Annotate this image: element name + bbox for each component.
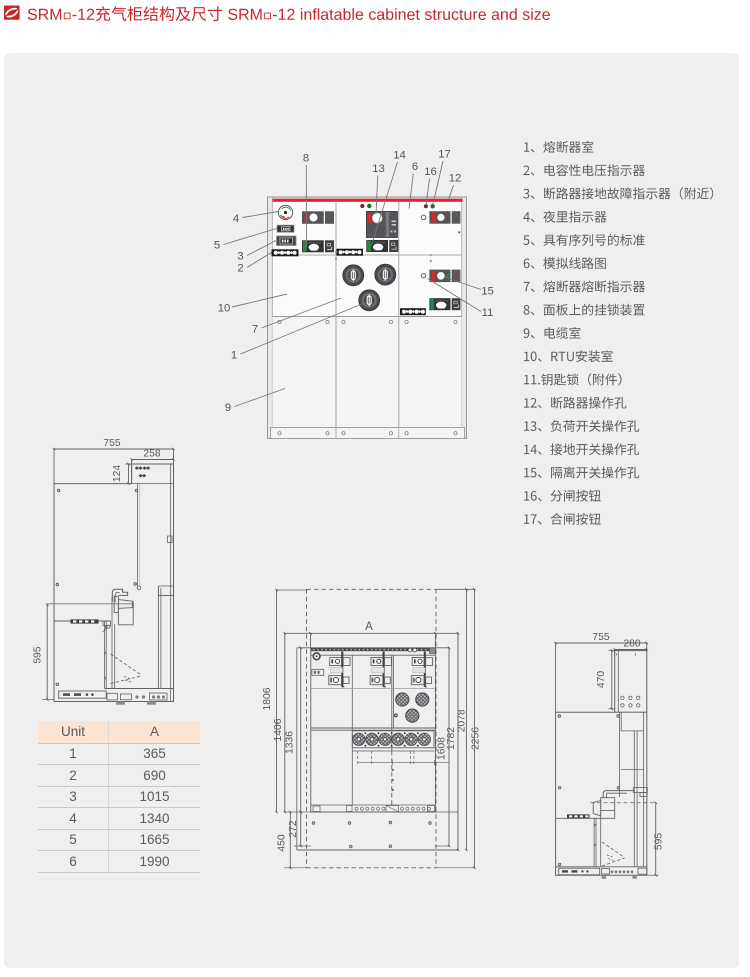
svg-text:13: 13 xyxy=(372,163,385,175)
svg-text:755: 755 xyxy=(103,438,120,449)
svg-text:450: 450 xyxy=(277,834,288,851)
svg-text:280: 280 xyxy=(623,639,640,650)
svg-text:4: 4 xyxy=(233,213,239,225)
svg-text:12: 12 xyxy=(449,173,462,185)
svg-text:10: 10 xyxy=(218,303,231,315)
svg-text:8: 8 xyxy=(303,153,309,165)
svg-text:6: 6 xyxy=(412,161,418,173)
svg-text:2256: 2256 xyxy=(471,727,482,750)
svg-text:A: A xyxy=(365,621,373,633)
svg-text:14: 14 xyxy=(393,150,406,162)
svg-text:2: 2 xyxy=(237,263,243,275)
svg-text:1: 1 xyxy=(231,350,237,362)
svg-text:1336: 1336 xyxy=(285,731,296,754)
svg-text:2078: 2078 xyxy=(457,709,468,732)
svg-text:595: 595 xyxy=(654,833,665,850)
svg-text:1806: 1806 xyxy=(262,687,273,710)
svg-text:272: 272 xyxy=(288,820,299,837)
svg-text:15: 15 xyxy=(481,286,494,298)
svg-text:1782: 1782 xyxy=(446,727,457,750)
svg-text:124: 124 xyxy=(112,465,123,482)
svg-text:1406: 1406 xyxy=(273,718,284,741)
svg-text:755: 755 xyxy=(592,632,609,643)
svg-text:3: 3 xyxy=(237,251,243,263)
svg-text:470: 470 xyxy=(596,671,607,688)
svg-text:17: 17 xyxy=(438,149,451,161)
svg-text:7: 7 xyxy=(252,324,258,336)
svg-text:16: 16 xyxy=(424,166,437,178)
svg-text:5: 5 xyxy=(214,240,220,252)
svg-text:258: 258 xyxy=(143,449,160,460)
svg-text:9: 9 xyxy=(225,402,231,414)
svg-text:11: 11 xyxy=(482,307,494,319)
svg-text:595: 595 xyxy=(33,646,44,663)
